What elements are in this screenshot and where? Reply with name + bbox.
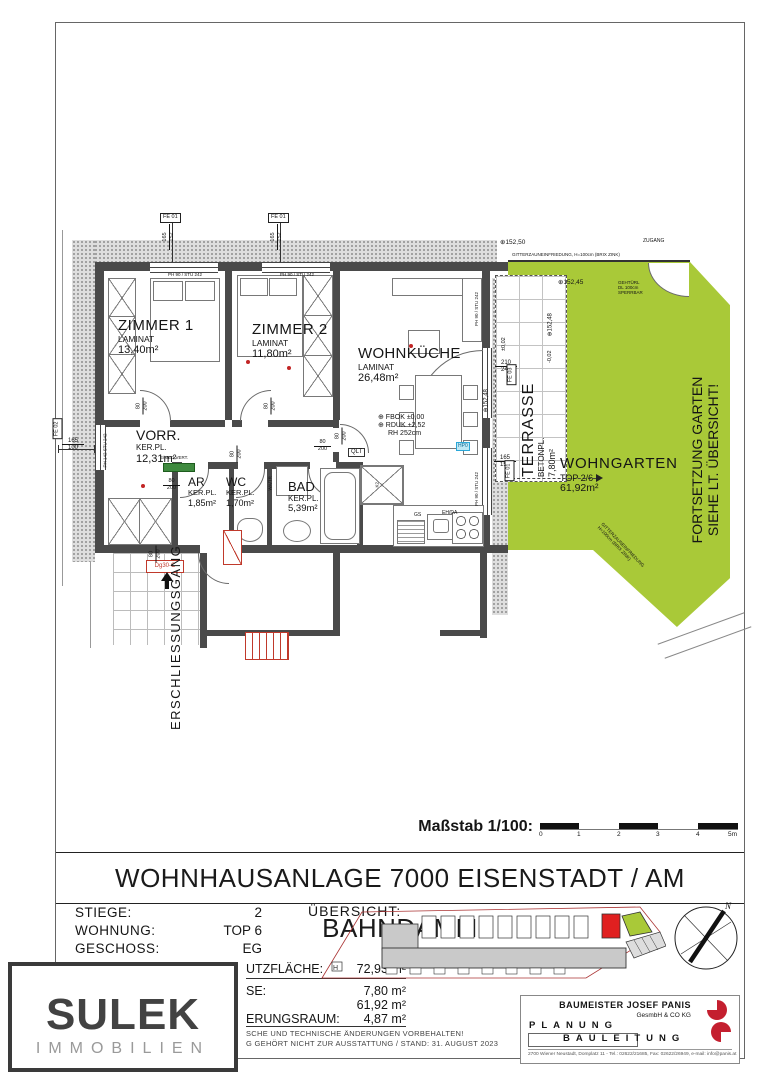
room-zimmer1: ZIMMER 1 LAMINAT 13,40m² — [118, 318, 194, 357]
dim-bottom: 152 — [277, 224, 284, 250]
stiege-label: STIEGE: — [75, 905, 132, 920]
scale-tick: 3 — [656, 831, 660, 838]
architect-planung: PLANUNG — [529, 1021, 618, 1032]
geschoss-label: GESCHOSS: — [75, 941, 160, 956]
garden-continuation-note: FORTSETZUNG GARTEN SIEHE LT. ÜBERSICHT! — [690, 330, 726, 590]
scale-tick: 5m — [728, 831, 737, 838]
room-name: ZIMMER 1 — [118, 318, 194, 335]
parapet-line2: STU 242 — [103, 433, 108, 451]
door-dim: 80200 — [137, 398, 149, 415]
property-line — [90, 560, 91, 648]
room-ar: AR KER.PL. 1,85m² — [188, 476, 217, 508]
wall — [95, 271, 104, 553]
note-line1: FORTSETZUNG GARTEN — [690, 330, 706, 590]
wall — [333, 553, 340, 636]
bathtub-inner — [324, 472, 356, 540]
dim-bottom: 200 — [155, 546, 162, 563]
sheet-title: WOHNHAUSANLAGE 7000 EISENSTADT / AM BAHN… — [56, 852, 744, 904]
wall — [480, 553, 487, 638]
wall — [225, 271, 232, 420]
gate-note: GEHTÜRL DL 100cm SPERRBAR — [618, 280, 643, 295]
room-bad: BAD KER.PL. 5,39m² — [288, 480, 319, 514]
parapet-note: PH 90 / STU 242 — [150, 272, 220, 277]
room-name: WOHNGARTEN — [560, 456, 678, 473]
room-name: VORR. — [136, 428, 180, 444]
site-h-mark: H — [333, 965, 338, 972]
dining-table — [415, 375, 462, 449]
wall — [232, 420, 242, 427]
chair — [399, 385, 414, 400]
dim-tick — [58, 445, 59, 453]
dim-bottom: 200 — [341, 428, 348, 445]
wohnung-value: TOP 6 — [180, 923, 262, 938]
geschoss-value: EG — [180, 941, 262, 956]
room-floor: LAMINAT — [358, 363, 461, 373]
disclaimer-line2: G GEHÖRT NICHT ZUR AUSSTATTUNG / STAND: … — [246, 1040, 498, 1048]
window-dim: 165152 — [163, 224, 175, 250]
washbasin — [283, 520, 311, 542]
emed-label: E/MED.VERT. — [160, 455, 188, 460]
room-zimmer2: ZIMMER 2 LAMINAT 11,80m² — [252, 322, 328, 361]
room-floor: KER.PL. — [226, 489, 255, 497]
architect-name: BAUMEISTER JOSEF PANIS — [531, 1000, 691, 1010]
chair — [463, 412, 478, 427]
hp0-mark: HP0 — [456, 442, 470, 451]
dim-bottom: 152 — [169, 224, 176, 250]
appliance-label-watr: WA/TR — [268, 471, 275, 491]
scale-tick: 0 — [539, 831, 543, 838]
architect-box: BAUMEISTER JOSEF PANIS GesmbH & CO KG PL… — [520, 995, 740, 1064]
dim-bottom: 200 — [236, 446, 243, 463]
wardrobe — [303, 355, 333, 397]
room-wohngarten: WOHNGARTEN TOP 2/6 61,92m² — [560, 456, 678, 495]
wohnung-label: WOHNUNG: — [75, 923, 156, 938]
wall — [208, 462, 238, 469]
level-mark: ⊕152,50 — [500, 239, 525, 246]
scale-tick: 1 — [577, 831, 581, 838]
scale-bar: 0 1 2 3 4 5m — [540, 818, 738, 838]
door-dim: 80200 — [231, 446, 243, 463]
parapet-note: PH 142 STU 242 — [103, 429, 114, 473]
wall — [268, 420, 333, 427]
room-floor: BETONPL. — [538, 367, 547, 477]
door-dim: 80200 — [163, 479, 180, 491]
level-mark: ⊕152,48 — [484, 369, 493, 413]
room-floor: LAMINAT — [252, 339, 328, 349]
architect-bauleitung: BAULEITUNG — [563, 1034, 685, 1045]
ceiling-point — [246, 360, 250, 364]
shaft-label: K2 — [375, 472, 382, 488]
scale-tick: 4 — [696, 831, 700, 838]
scale-label: Maßstab 1/100: — [380, 818, 533, 836]
insulation-hatch-left — [72, 240, 95, 562]
dim-bottom: 200 — [142, 398, 149, 415]
room-name: BAD — [288, 480, 319, 495]
room-name: ZIMMER 2 — [252, 322, 328, 339]
window-dim: 165100 — [62, 438, 84, 451]
parapet-note: PH 90 / STU 242 — [262, 272, 332, 277]
wall — [482, 271, 490, 348]
door-tag-fe03: FE 03 — [507, 365, 517, 386]
compass-north-label: N — [724, 901, 732, 911]
chair — [399, 440, 414, 455]
wall — [333, 271, 340, 420]
dishwasher — [397, 520, 425, 544]
shaft — [360, 465, 404, 505]
floor-level-note: ⊕ FBOK ±0,00 ⊕ RDUK +2,52 RH 252cm — [378, 414, 425, 437]
level-mark: ±0,02 — [501, 317, 509, 351]
room-floor: KER.PL. — [188, 489, 217, 497]
wall — [104, 420, 140, 427]
area-row-value: 61,92 m² — [310, 998, 406, 1012]
room-area: 26,48m² — [358, 372, 461, 384]
fence-line — [508, 260, 690, 262]
door-dim: 80200 — [314, 440, 331, 452]
window-dim: 165152 — [271, 224, 283, 250]
room-wc: WC KER.PL. 1,70m² — [226, 476, 255, 508]
room-name: WC — [226, 476, 255, 489]
window-tag-fe01: FE 01 — [505, 461, 515, 482]
insulation-hatch-top — [74, 240, 497, 262]
room-wohnkueche: WOHNKÜCHE LAMINAT 26,48m² — [358, 346, 461, 385]
pillow — [240, 278, 268, 296]
wardrobe — [108, 354, 136, 394]
window-tag-fe01: FE 01 — [268, 213, 289, 223]
qlt-tag: QLT — [348, 448, 365, 457]
area-row-value: 4,87 m² — [310, 1012, 406, 1026]
room-area: 7,80m² — [547, 367, 557, 477]
access-label: ZUGANG — [643, 239, 664, 245]
stove — [452, 512, 483, 544]
pillow — [153, 281, 183, 301]
room-area: 13,40m² — [118, 344, 194, 356]
divider — [246, 1026, 406, 1027]
rduk-note: ⊕ RDUK +2,52 — [378, 422, 425, 430]
highlighted-unit-red — [602, 914, 620, 938]
wardrobe — [108, 498, 141, 545]
sink-basin — [433, 519, 449, 533]
wardrobe — [108, 278, 136, 318]
scale-tick: 2 — [617, 831, 621, 838]
divider — [528, 1049, 732, 1050]
wardrobe — [139, 498, 172, 545]
ceiling-point — [287, 366, 291, 370]
floorplan-sheet: Dg30-C ZIMMER 1 LAMINAT 13,40m² ZIMMER 2… — [0, 0, 763, 1080]
parapet-note: PH 90 / STU 242 — [474, 272, 482, 326]
pillow — [185, 281, 215, 301]
parapet-line1: PH 142 — [103, 453, 108, 468]
wall — [482, 418, 490, 448]
wall — [333, 452, 339, 462]
dim-bottom: 100 — [62, 444, 84, 451]
dim-bottom: 200 — [314, 446, 331, 453]
sulek-logo-box: SULEK IMMOBILIEN — [8, 962, 238, 1072]
room-name: TERRASSE — [520, 367, 538, 477]
note-line2: SIEHE LT. ÜBERSICHT! — [706, 330, 722, 590]
parapet-note: PH 90 / STU 242 — [474, 452, 482, 506]
sulek-logo-subtitle: IMMOBILIEN — [12, 1040, 234, 1058]
area-row-label: SE: — [246, 984, 266, 998]
door-dim: 80200 — [336, 428, 348, 445]
entrance-step — [223, 530, 242, 565]
room-area: 1,70m² — [226, 498, 255, 508]
room-name: WOHNKÜCHE — [358, 346, 461, 363]
corridor-label: ERSCHLIESSUNGSGANG — [169, 550, 187, 730]
dim-bottom: 200 — [270, 398, 277, 415]
disclaimer-line1: SCHE UND TECHNISCHE ÄNDERUNGEN VORBEHALT… — [246, 1030, 464, 1038]
scale-bar-segment — [619, 823, 658, 829]
ceiling-point — [141, 484, 145, 488]
scale-bar-line — [540, 829, 738, 830]
appliance-label-ehda: EH/DA — [442, 511, 457, 517]
room-area: 11,80m² — [252, 348, 328, 360]
appliance-label-gs: GS — [414, 513, 421, 519]
room-area: 61,92m² — [560, 483, 678, 495]
stiege-value: 2 — [180, 905, 262, 920]
dim-bottom: 200 — [163, 485, 180, 492]
scale-bar-segment — [540, 823, 579, 829]
site-overview-map: H — [318, 902, 666, 994]
room-area: 5,39m² — [288, 504, 319, 515]
wall — [170, 420, 225, 427]
architect-logo-icon — [701, 998, 737, 1044]
window-tag-fe02: FE 02 — [53, 419, 63, 440]
chair — [463, 385, 478, 400]
fbok-note: ⊕ FBOK ±0,00 — [378, 414, 425, 422]
fence-label-top: GITTERZAUNEINFRIEDUNG, H=100cm (BRIX ZIN… — [512, 252, 620, 257]
level-mark: -0,02 — [547, 329, 555, 363]
room-floor: KER.PL. — [136, 444, 180, 453]
architect-legal: GesmbH & CO KG — [601, 1012, 691, 1019]
dim-tick — [94, 445, 95, 453]
sulek-logo-name: SULEK — [12, 990, 234, 1039]
wardrobe — [303, 275, 333, 317]
room-floor: LAMINAT — [118, 335, 194, 345]
scale-bar-segment — [698, 823, 738, 829]
wall — [440, 630, 487, 636]
architect-address: 2700 Wiener Neustadt, Domplatz 11 - Tel.… — [528, 1052, 736, 1057]
window-tag-fe01: FE 01 — [160, 213, 181, 223]
level-mark: ⊕152,45 — [558, 279, 583, 286]
pillow — [269, 278, 297, 296]
room-area: 1,85m² — [188, 498, 217, 508]
highlighted-garden-green — [622, 912, 652, 936]
door-dim: 80200 — [265, 398, 277, 415]
room-name: AR — [188, 476, 217, 489]
property-line — [62, 230, 63, 586]
compass-icon: N — [668, 898, 746, 972]
stair-symbol — [245, 632, 289, 660]
rh-note: RH 252cm — [378, 430, 425, 438]
door-dim: 80200 — [150, 546, 162, 563]
gate-line3: SPERRBAR — [618, 290, 643, 295]
